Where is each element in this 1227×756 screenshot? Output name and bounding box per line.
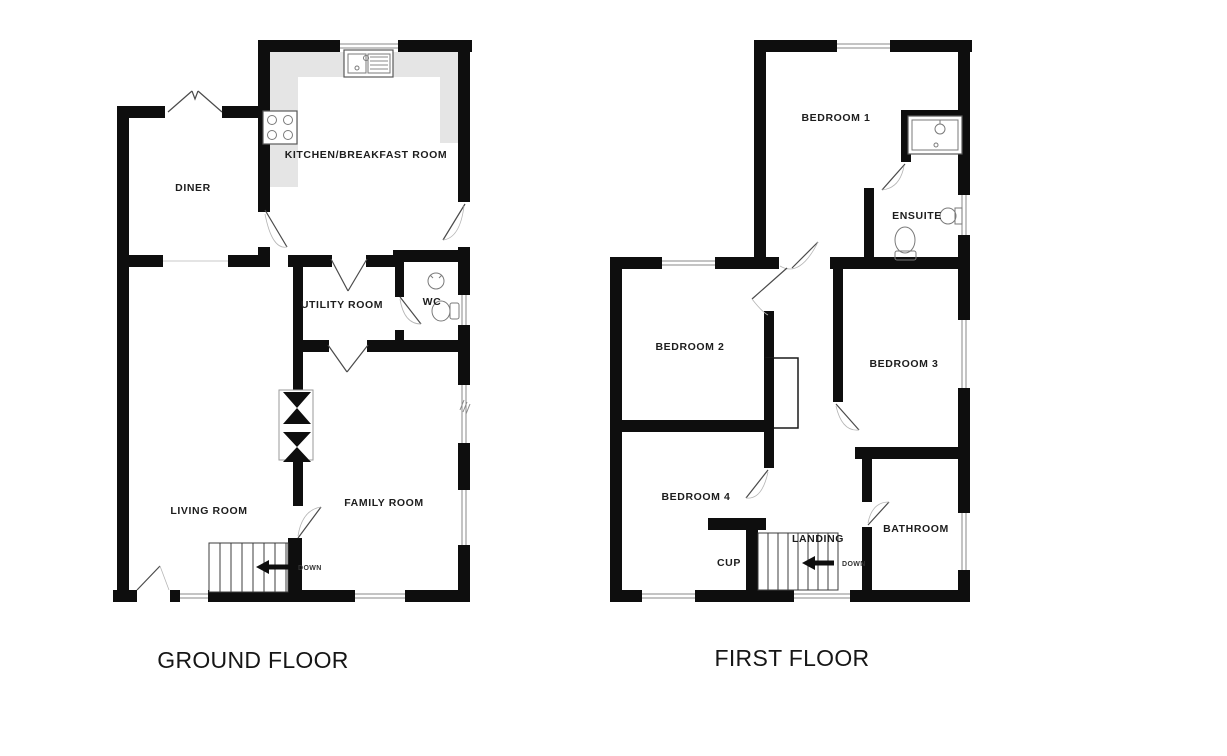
room-label-bedroom4: BEDROOM 4: [662, 491, 731, 503]
door-swing: [331, 259, 367, 291]
room-label-diner: DINER: [175, 182, 211, 194]
ground-floor-title: GROUND FLOOR: [157, 647, 348, 673]
door-swing: [752, 268, 787, 315]
room-label-kitchen: KITCHEN/BREAKFAST ROOM: [285, 149, 448, 161]
first-floor-title: FIRST FLOOR: [715, 645, 870, 671]
room-label-living: LIVING ROOM: [170, 505, 247, 517]
chimney-icon: [279, 390, 313, 462]
window: [794, 590, 850, 602]
room-label-bedroom2: BEDROOM 2: [656, 341, 725, 353]
window: [642, 590, 695, 602]
window: [958, 513, 970, 570]
floorplan-page: DOWN: [0, 0, 1227, 756]
shower-icon: [908, 116, 962, 154]
window: [662, 257, 715, 269]
window: [958, 195, 970, 235]
room-label-family: FAMILY ROOM: [344, 497, 424, 509]
door-swing: [443, 204, 465, 240]
window: [180, 590, 208, 602]
window: [958, 320, 970, 388]
toilet-icon: [895, 227, 916, 260]
door-swing: [168, 91, 222, 112]
floorplan-canvas: DOWN: [0, 0, 1227, 756]
door-swing: [882, 164, 905, 190]
hob-icon: [263, 111, 297, 144]
room-label-bedroom1: BEDROOM 1: [802, 112, 871, 124]
stairs-down-label: DOWN: [298, 565, 322, 572]
door-swing: [137, 566, 169, 590]
window: [458, 490, 470, 545]
room-label-cupboard: CUP: [717, 557, 741, 569]
first-floor-plan: DOWN BEDROOM 1 ENSUITE BEDR: [610, 40, 972, 671]
door-swing: [780, 242, 818, 269]
room-labels: BEDROOM 1 ENSUITE BEDROOM 2 BEDROOM 3 BE…: [656, 112, 949, 569]
door-swing: [265, 210, 287, 247]
window: [458, 295, 470, 325]
door-swing: [746, 470, 768, 498]
room-label-landing: LANDING: [792, 533, 844, 545]
windows: [163, 40, 470, 602]
ground-floor-plan: DOWN: [113, 40, 472, 673]
room-label-bedroom3: BEDROOM 3: [870, 358, 939, 370]
window: [458, 385, 470, 443]
basin-icon: [428, 273, 444, 289]
room-label-wc: WC: [423, 296, 442, 308]
window: [355, 590, 405, 602]
door-swing: [328, 345, 368, 372]
door-swing: [868, 502, 889, 525]
door-swing: [836, 404, 859, 430]
room-label-ensuite: ENSUITE: [892, 210, 942, 222]
door-swing: [400, 297, 421, 324]
room-label-utility: UTILITY ROOM: [301, 299, 383, 311]
stairs-ground: DOWN: [209, 543, 322, 592]
room-label-bathroom: BATHROOM: [883, 523, 949, 535]
sink-icon: [344, 50, 393, 77]
window: [837, 40, 890, 52]
stairs-down-label: DOWN: [842, 561, 866, 568]
door-swing: [298, 507, 321, 538]
